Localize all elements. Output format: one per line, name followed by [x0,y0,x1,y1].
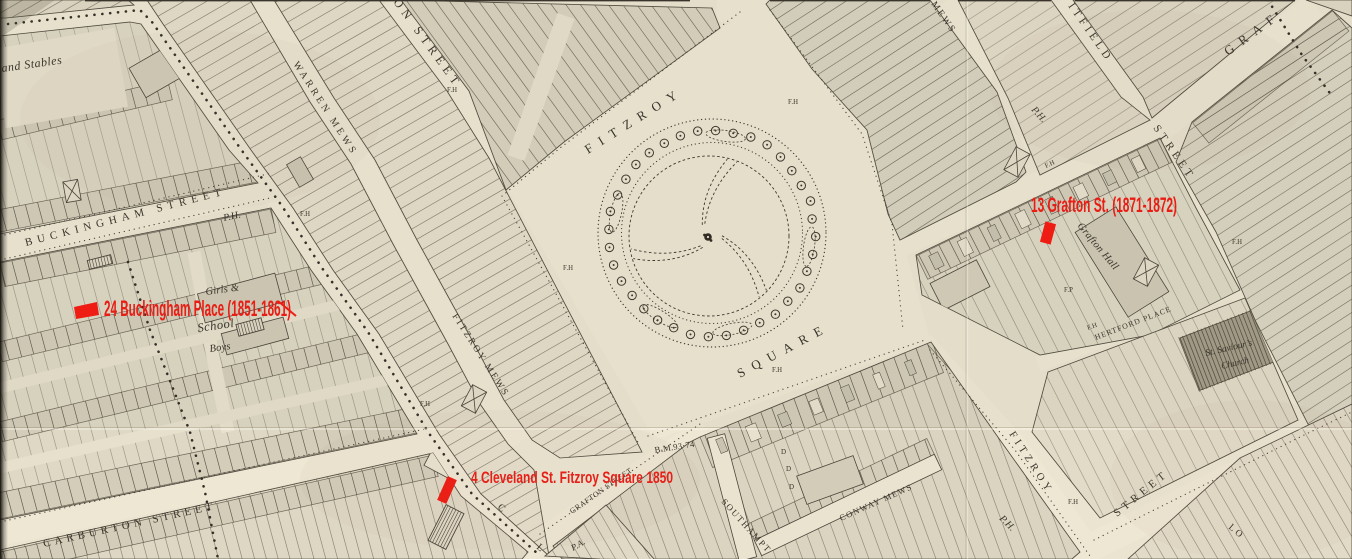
svg-text:24 Buckingham Place (1851-1861: 24 Buckingham Place (1851-1861) [104,296,291,321]
svg-text:F.H: F.H [1068,499,1078,506]
svg-text:F.H: F.H [420,401,430,408]
svg-text:13 Grafton St. (1871-1872): 13 Grafton St. (1871-1872) [1031,194,1177,217]
svg-text:F.H: F.H [788,99,798,106]
svg-text:F.H: F.H [300,211,310,218]
svg-text:D: D [789,483,794,491]
svg-text:F.H: F.H [1232,239,1242,246]
svg-text:F.P: F.P [1064,287,1073,294]
svg-text:D: D [781,448,786,456]
svg-text:F.H: F.H [447,87,457,94]
svg-text:F.H: F.H [772,367,782,374]
svg-text:F.H: F.H [563,265,573,272]
svg-text:D: D [786,465,791,473]
